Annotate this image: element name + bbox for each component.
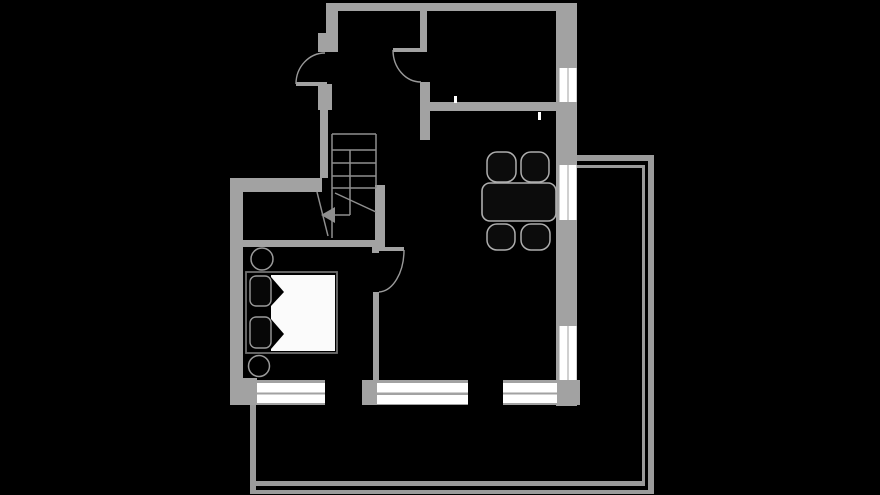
- wall-west-upper: [326, 3, 338, 33]
- dining-chair-2: [521, 152, 549, 182]
- entry-door-stub-lower: [318, 84, 332, 110]
- window-east-upper-pane-1: [560, 68, 568, 102]
- wall-west-lower: [230, 178, 243, 405]
- pillow-2: [250, 317, 271, 348]
- storage-east-wall: [420, 11, 427, 47]
- wall-south-east-block: [556, 380, 580, 405]
- entry-door-leaf: [296, 82, 327, 86]
- window-south-3-pane-1: [503, 383, 557, 393]
- kitchen-door-leaf: [393, 48, 421, 52]
- window-east-lower-pane-2: [569, 326, 577, 380]
- kitchen-door-hinge-stub: [420, 47, 427, 52]
- bedroom-door-arc: [379, 250, 404, 292]
- dining-chair-3: [487, 224, 515, 250]
- stair-side-wall: [375, 185, 385, 247]
- wall-south-west-block: [230, 378, 257, 405]
- balcony-rail-left: [250, 405, 256, 490]
- wall-break-tick-1: [454, 96, 457, 103]
- balcony-rail-right-inner: [642, 165, 645, 486]
- bedside-table-2: [249, 356, 270, 377]
- window-south-2-pane-1: [377, 383, 468, 393]
- balcony-rail-bottom-outer: [250, 490, 654, 494]
- window-east-upper-pane-2: [569, 68, 577, 102]
- stair-line-10: [335, 193, 376, 212]
- bedroom-door-leaf: [377, 247, 404, 251]
- kitchen-door-arc: [393, 50, 421, 82]
- wall-south-mid-block: [362, 380, 377, 405]
- interior-cross-wall: [427, 102, 556, 111]
- window-south-1-pane-1: [257, 383, 325, 393]
- entry-door-arc: [296, 53, 325, 84]
- pillow-1: [250, 276, 271, 306]
- hall-south-wall: [230, 240, 385, 247]
- bedside-table-1: [251, 248, 273, 270]
- balcony-rail-right-outer: [648, 155, 654, 494]
- balcony-rail-top-inner: [577, 165, 645, 168]
- window-east-middle-pane-1: [560, 165, 568, 220]
- wall-north: [326, 3, 577, 11]
- balcony-rail-top-outer: [577, 155, 654, 161]
- bedroom-partition-wall: [373, 292, 379, 380]
- balcony-rail-bottom-inner: [250, 481, 645, 486]
- floor-plan-drawing: [0, 0, 880, 495]
- window-east-lower-pane-1: [560, 326, 568, 380]
- entry-door-stub-upper: [318, 33, 338, 52]
- stair-direction-arrow: [321, 207, 335, 223]
- window-south-3-pane-2: [503, 395, 557, 404]
- wall-break-tick-2: [538, 112, 541, 120]
- floorplan-canvas: [0, 0, 880, 495]
- window-south-1-pane-2: [257, 395, 325, 404]
- bed-mattress: [271, 275, 335, 351]
- dining-chair-1: [487, 152, 516, 182]
- dining-table: [482, 183, 556, 221]
- hall-north-wall: [230, 178, 322, 192]
- dining-chair-4: [521, 224, 550, 250]
- window-east-middle-pane-2: [569, 165, 577, 220]
- window-south-2-pane-2: [377, 395, 468, 404]
- hall-west-wall: [320, 110, 328, 178]
